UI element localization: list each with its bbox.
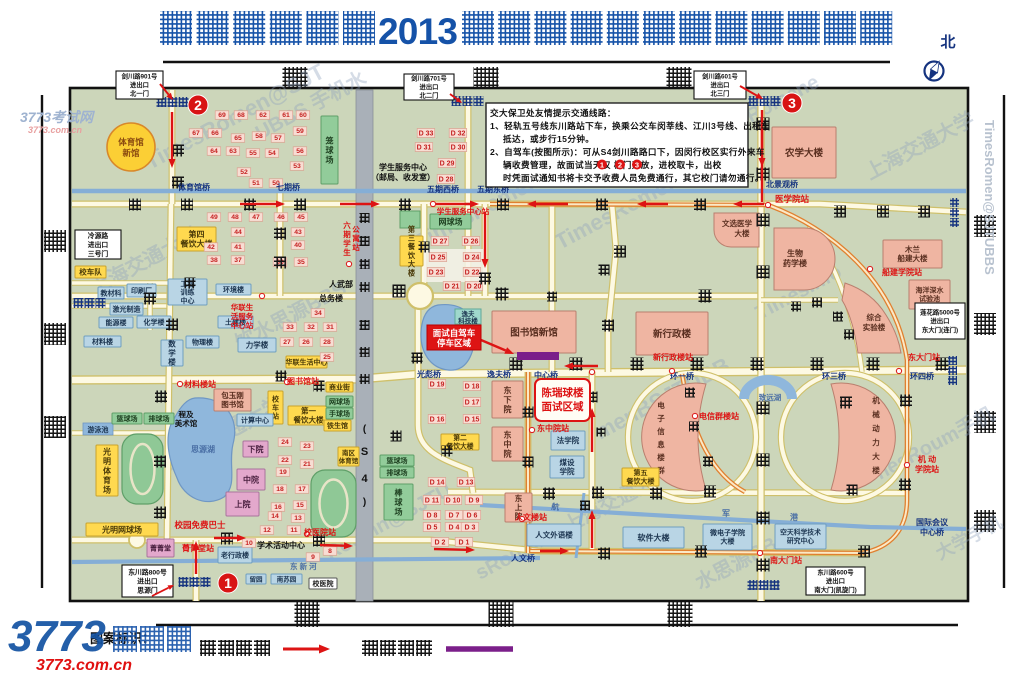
svg-text:D 25: D 25 xyxy=(431,254,446,261)
svg-text:3: 3 xyxy=(788,95,796,111)
svg-text:8: 8 xyxy=(328,548,332,555)
svg-text:22: 22 xyxy=(281,457,289,464)
svg-text:D 6: D 6 xyxy=(467,512,478,519)
svg-text:程及: 程及 xyxy=(179,410,194,419)
svg-text:3773考试网: 3773考试网 xyxy=(20,109,95,125)
svg-text:微电子学院: 微电子学院 xyxy=(709,528,745,537)
svg-text:16: 16 xyxy=(274,504,282,511)
svg-text:公寓站: 公寓站 xyxy=(352,225,360,252)
svg-text:农学大楼: 农学大楼 xyxy=(784,147,824,159)
svg-text:35: 35 xyxy=(297,259,305,266)
svg-text:铁生馆: 铁生馆 xyxy=(327,421,348,430)
svg-text:东川路600号: 东川路600号 xyxy=(817,568,854,577)
svg-text:27: 27 xyxy=(283,339,291,346)
svg-text:63: 63 xyxy=(229,148,237,155)
svg-text:新行政楼站: 新行政楼站 xyxy=(653,352,693,362)
svg-text:商业街: 商业街 xyxy=(329,382,350,391)
svg-text:中心站: 中心站 xyxy=(231,320,254,330)
svg-text:D 29: D 29 xyxy=(440,160,455,167)
svg-text:计算中心: 计算中心 xyxy=(241,415,269,424)
svg-text:思源湖: 思源湖 xyxy=(191,444,215,454)
svg-text:力学楼: 力学楼 xyxy=(246,340,269,350)
svg-text:67: 67 xyxy=(192,130,200,137)
svg-text:D 24: D 24 xyxy=(465,254,480,261)
svg-text:教材科: 教材科 xyxy=(100,288,122,297)
svg-text:58: 58 xyxy=(255,133,263,140)
svg-text:海洋深水: 海洋深水 xyxy=(916,286,945,295)
svg-text:（邮局、收发室）: （邮局、收发室） xyxy=(371,172,435,182)
svg-text:网球场: 网球场 xyxy=(439,216,463,226)
svg-text:26: 26 xyxy=(302,339,310,346)
svg-text:北: 北 xyxy=(940,34,955,51)
svg-text:航: 航 xyxy=(551,501,560,512)
svg-text:餐饮大楼: 餐饮大楼 xyxy=(293,415,324,425)
svg-text:51: 51 xyxy=(252,180,260,187)
svg-text:4: 4 xyxy=(361,473,368,485)
svg-text:生物: 生物 xyxy=(787,248,803,258)
svg-text:材料楼站: 材料楼站 xyxy=(184,379,216,389)
svg-text:21: 21 xyxy=(303,461,311,468)
svg-text:图书馆新馆: 图书馆新馆 xyxy=(510,326,558,338)
svg-text:科技楼: 科技楼 xyxy=(458,316,478,325)
svg-text:木兰: 木兰 xyxy=(904,244,920,254)
svg-text:中院: 中院 xyxy=(243,474,259,484)
svg-text:餐饮大楼: 餐饮大楼 xyxy=(626,477,655,486)
svg-text:篮球场: 篮球场 xyxy=(386,456,408,465)
svg-text:北一门: 北一门 xyxy=(130,89,149,98)
svg-text:进出口: 进出口 xyxy=(88,240,109,249)
svg-text:45: 45 xyxy=(297,214,305,221)
svg-text:进出口: 进出口 xyxy=(930,316,949,325)
svg-text:13: 13 xyxy=(294,515,302,522)
svg-text:中心: 中心 xyxy=(181,296,195,305)
svg-text:物理楼: 物理楼 xyxy=(192,337,213,346)
svg-text:65: 65 xyxy=(234,135,242,142)
svg-text:D 26: D 26 xyxy=(464,238,479,245)
svg-text:南大门站: 南大门站 xyxy=(770,555,802,565)
svg-text:D 31: D 31 xyxy=(417,144,432,151)
svg-text:D 2: D 2 xyxy=(435,539,446,546)
svg-text:56: 56 xyxy=(296,148,304,155)
svg-text:网球场: 网球场 xyxy=(329,397,350,406)
svg-text:66: 66 xyxy=(211,130,219,137)
svg-text:东下院: 东下院 xyxy=(504,385,512,414)
svg-text:进出口: 进出口 xyxy=(130,80,149,89)
svg-text:大楼: 大楼 xyxy=(721,537,735,546)
svg-text:上院: 上院 xyxy=(235,499,251,509)
svg-text:D 22: D 22 xyxy=(465,269,480,276)
svg-text:试验池: 试验池 xyxy=(919,294,940,303)
svg-text:57: 57 xyxy=(274,135,282,142)
svg-text:校医院站: 校医院站 xyxy=(304,527,336,537)
svg-text:电信群楼站: 电信群楼站 xyxy=(699,411,739,421)
svg-text:大楼: 大楼 xyxy=(735,228,750,238)
svg-text:44: 44 xyxy=(234,229,242,236)
svg-text:致远湖: 致远湖 xyxy=(759,392,782,402)
svg-text:59: 59 xyxy=(296,128,304,135)
svg-text:剑川路901号: 剑川路901号 xyxy=(121,72,158,81)
svg-text:进出口: 进出口 xyxy=(420,82,439,91)
svg-text:环四桥: 环四桥 xyxy=(910,371,935,381)
svg-text:剑川路601号: 剑川路601号 xyxy=(701,72,738,81)
svg-text:D 15: D 15 xyxy=(465,416,480,423)
svg-text:活服务: 活服务 xyxy=(231,311,254,321)
svg-text:数学楼: 数学楼 xyxy=(168,339,176,367)
svg-text:激光制造: 激光制造 xyxy=(113,304,142,313)
svg-text:TimesRomen@SJTUBBS: TimesRomen@SJTUBBS xyxy=(982,120,997,275)
svg-text:1: 1 xyxy=(224,575,232,591)
svg-text:综合: 综合 xyxy=(867,312,882,322)
svg-text:东中院: 东中院 xyxy=(504,429,512,458)
svg-text:环三桥: 环三桥 xyxy=(822,371,847,381)
svg-text:40: 40 xyxy=(294,242,302,249)
svg-text:光彪桥: 光彪桥 xyxy=(416,369,442,379)
svg-text:光明网球场: 光明网球场 xyxy=(101,524,142,534)
svg-text:体育馆: 体育馆 xyxy=(118,137,144,147)
svg-text:25: 25 xyxy=(323,354,331,361)
svg-text:停车区域: 停车区域 xyxy=(437,338,472,348)
svg-text:14: 14 xyxy=(271,513,279,520)
svg-text:面试自驾车: 面试自驾车 xyxy=(433,328,476,338)
svg-text:下院: 下院 xyxy=(248,444,264,454)
svg-text:D 1: D 1 xyxy=(459,539,470,546)
svg-text:人文楼站: 人文楼站 xyxy=(515,512,547,522)
svg-text:42: 42 xyxy=(207,244,215,251)
svg-text:D 32: D 32 xyxy=(451,130,466,137)
svg-text:南大门(凯旋门): 南大门(凯旋门) xyxy=(814,585,857,594)
svg-text:船建学院站: 船建学院站 xyxy=(882,267,922,277)
svg-text:D 9: D 9 xyxy=(469,497,480,504)
svg-text:人武部: 人武部 xyxy=(329,279,353,289)
svg-text:校园免费巴士: 校园免费巴士 xyxy=(174,520,226,530)
svg-text:9: 9 xyxy=(311,554,315,561)
svg-text:D 5: D 5 xyxy=(427,524,438,531)
svg-text:D 33: D 33 xyxy=(419,130,434,137)
svg-text:港: 港 xyxy=(790,512,799,522)
svg-text:抵达，或步行15分钟。: 抵达，或步行15分钟。 xyxy=(503,133,594,144)
svg-text:学生服务中心: 学生服务中心 xyxy=(379,162,427,172)
svg-text:D 8: D 8 xyxy=(427,512,438,519)
svg-text:南区: 南区 xyxy=(342,448,356,457)
svg-text:进出口: 进出口 xyxy=(826,576,845,585)
svg-text:面试区域: 面试区域 xyxy=(542,400,584,413)
svg-text:15: 15 xyxy=(296,502,304,509)
svg-text:2013: 2013 xyxy=(378,11,458,52)
svg-text:人文桥: 人文桥 xyxy=(511,553,536,563)
svg-text:逸夫: 逸夫 xyxy=(462,309,476,318)
svg-text:排球场: 排球场 xyxy=(387,468,408,477)
svg-text:第二: 第二 xyxy=(453,433,467,442)
svg-text:53: 53 xyxy=(293,163,301,170)
svg-text:东川路800号: 东川路800号 xyxy=(128,567,167,576)
svg-text:思源门: 思源门 xyxy=(137,585,158,594)
svg-text:1: 1 xyxy=(600,161,604,170)
svg-text:逸夫桥: 逸夫桥 xyxy=(487,369,512,379)
svg-text:机 动: 机 动 xyxy=(918,454,936,464)
svg-text:六期学生: 六期学生 xyxy=(343,220,351,257)
svg-text:医学院站: 医学院站 xyxy=(775,194,810,204)
svg-text:光明体育场: 光明体育场 xyxy=(102,446,112,494)
svg-text:69: 69 xyxy=(218,112,226,119)
svg-text:军: 军 xyxy=(722,509,730,518)
svg-text:D 16: D 16 xyxy=(430,416,445,423)
svg-text:手球场: 手球场 xyxy=(329,409,350,418)
svg-text:交大保卫处友情提示交通线路：: 交大保卫处友情提示交通线路： xyxy=(490,107,616,118)
svg-text:第三餐饮大楼: 第三餐饮大楼 xyxy=(407,225,416,277)
svg-text:北三门: 北三门 xyxy=(711,89,730,98)
svg-text:2: 2 xyxy=(194,97,202,113)
svg-text:54: 54 xyxy=(268,150,276,157)
svg-text:游泳池: 游泳池 xyxy=(88,425,109,434)
svg-text:研究中心: 研究中心 xyxy=(787,536,814,545)
svg-text:64: 64 xyxy=(210,148,218,155)
svg-text:北景观桥: 北景观桥 xyxy=(766,179,799,189)
svg-text:55: 55 xyxy=(249,150,257,157)
svg-text:18: 18 xyxy=(276,486,284,493)
svg-text:2: 2 xyxy=(618,161,622,170)
svg-text:2、自驾车(按图所示)：可从S4剑川路路口下，因闵行校区实行: 2、自驾车(按图所示)：可从S4剑川路路口下，因闵行校区实行外来车 xyxy=(490,146,765,157)
svg-text:进出口: 进出口 xyxy=(711,80,730,89)
svg-text:进出口: 进出口 xyxy=(137,576,158,585)
svg-text:48: 48 xyxy=(231,214,239,221)
svg-text:19: 19 xyxy=(279,469,287,476)
svg-text:船建大楼: 船建大楼 xyxy=(898,253,928,263)
svg-text:): ) xyxy=(363,497,366,508)
svg-text:第五: 第五 xyxy=(634,468,648,477)
svg-text:3773: 3773 xyxy=(8,612,106,661)
svg-text:62: 62 xyxy=(259,112,267,119)
svg-text:S: S xyxy=(361,446,368,458)
svg-text:D 18: D 18 xyxy=(465,383,480,390)
svg-text:第一: 第一 xyxy=(301,406,316,416)
svg-text:老行政楼: 老行政楼 xyxy=(220,551,249,560)
svg-text:中心桥: 中心桥 xyxy=(920,527,945,537)
svg-text:留园: 留园 xyxy=(250,574,264,583)
svg-text:空天科学技术: 空天科学技术 xyxy=(780,528,821,537)
svg-text:D 14: D 14 xyxy=(430,479,445,486)
svg-text:33: 33 xyxy=(286,324,294,331)
svg-text:38: 38 xyxy=(210,257,218,264)
svg-text:笼球场: 笼球场 xyxy=(325,135,335,164)
svg-text:实验楼: 实验楼 xyxy=(863,322,886,332)
svg-text:28: 28 xyxy=(323,339,331,346)
svg-text:五期西桥: 五期西桥 xyxy=(427,184,460,194)
svg-text:D 3: D 3 xyxy=(465,524,476,531)
svg-text:学生服务中心站: 学生服务中心站 xyxy=(437,206,490,216)
svg-text:10: 10 xyxy=(245,540,253,547)
svg-text:D 23: D 23 xyxy=(429,269,444,276)
svg-text:三号门: 三号门 xyxy=(88,249,109,258)
svg-text:排球场: 排球场 xyxy=(149,414,170,423)
svg-text:莲花路5000号: 莲花路5000号 xyxy=(920,308,960,317)
svg-text:东 新 河: 东 新 河 xyxy=(290,561,317,571)
svg-text:3773.com.cn: 3773.com.cn xyxy=(28,125,83,135)
svg-text:文选医学: 文选医学 xyxy=(722,218,752,228)
svg-text:篮球场: 篮球场 xyxy=(116,414,138,423)
svg-text:棒球场: 棒球场 xyxy=(395,487,404,516)
svg-text:新馆: 新馆 xyxy=(122,148,140,158)
svg-text:北二门: 北二门 xyxy=(420,91,439,100)
svg-text:菁菁堂站: 菁菁堂站 xyxy=(182,543,214,553)
svg-text:17: 17 xyxy=(298,486,306,493)
svg-text:D 30: D 30 xyxy=(451,144,466,151)
svg-text:七期桥: 七期桥 xyxy=(276,182,301,192)
svg-text:68: 68 xyxy=(237,112,245,119)
svg-text:1、轻轨五号线东川路站下车，换乘公交车闵莘线、江川3号线、出: 1、轻轨五号线东川路站下车，换乘公交车闵莘线、江川3号线、出租车 xyxy=(490,120,770,131)
svg-text:陈瑞球楼: 陈瑞球楼 xyxy=(542,386,584,399)
svg-text:时凭面试通知书将卡交予收费人员免费通行，其它校门请勿通行。: 时凭面试通知书将卡交予收费人员免费通行，其它校门请勿通行。 xyxy=(503,172,764,183)
svg-text:法学院: 法学院 xyxy=(557,435,580,445)
svg-text:东大门(连门): 东大门(连门) xyxy=(922,325,958,334)
svg-text:包玉刚: 包玉刚 xyxy=(220,390,244,400)
svg-text:3: 3 xyxy=(635,161,639,170)
svg-text:D 27: D 27 xyxy=(433,238,448,245)
svg-text:新行政楼: 新行政楼 xyxy=(653,328,692,340)
svg-text:49: 49 xyxy=(210,214,218,221)
svg-text:图书馆: 图书馆 xyxy=(221,399,244,409)
svg-text:41: 41 xyxy=(234,244,242,251)
svg-text:图书馆站: 图书馆站 xyxy=(287,376,319,386)
svg-text:46: 46 xyxy=(277,214,285,221)
svg-text:美术馆: 美术馆 xyxy=(175,418,198,428)
svg-text:D 7: D 7 xyxy=(449,512,460,519)
svg-text:学院站: 学院站 xyxy=(915,464,939,474)
svg-text:43: 43 xyxy=(294,229,302,236)
svg-text:D 10: D 10 xyxy=(446,497,461,504)
svg-text:34: 34 xyxy=(314,310,322,317)
svg-text:47: 47 xyxy=(252,214,260,221)
svg-text:D 19: D 19 xyxy=(430,381,445,388)
svg-text:辆收费管理，故面试当天仅: 辆收费管理，故面试当天仅 校门开放，进校取卡，出校 xyxy=(503,159,722,170)
svg-text:D 17: D 17 xyxy=(465,399,480,406)
svg-text:化学楼: 化学楼 xyxy=(144,317,165,326)
svg-text:3773.com.cn: 3773.com.cn xyxy=(36,657,132,674)
svg-text:校车队: 校车队 xyxy=(79,267,102,277)
svg-text:训练: 训练 xyxy=(181,287,195,296)
svg-text:32: 32 xyxy=(307,324,315,331)
svg-text:体育馆桥: 体育馆桥 xyxy=(178,182,211,192)
svg-text:环境楼: 环境楼 xyxy=(223,285,244,294)
svg-text:D 21: D 21 xyxy=(445,283,460,290)
svg-text:11: 11 xyxy=(290,527,297,534)
svg-text:煤设: 煤设 xyxy=(560,457,575,467)
svg-text:D 11: D 11 xyxy=(425,497,440,504)
svg-text:东大门站: 东大门站 xyxy=(908,352,940,362)
svg-text:国际会议: 国际会议 xyxy=(916,517,949,527)
svg-text:软件大楼: 软件大楼 xyxy=(638,532,670,542)
svg-text:校医院: 校医院 xyxy=(313,579,334,588)
svg-text:61: 61 xyxy=(282,112,290,119)
svg-text:37: 37 xyxy=(234,257,242,264)
svg-text:冷源路: 冷源路 xyxy=(88,231,109,240)
svg-text:药学楼: 药学楼 xyxy=(783,258,807,268)
svg-text:总务楼: 总务楼 xyxy=(319,293,343,303)
svg-text:菁菁堂: 菁菁堂 xyxy=(150,544,171,553)
svg-text:第四: 第四 xyxy=(189,229,205,239)
svg-text:D 28: D 28 xyxy=(439,176,454,183)
svg-text:D 13: D 13 xyxy=(459,479,474,486)
svg-text:南苏园: 南苏园 xyxy=(277,574,297,583)
svg-text:D 4: D 4 xyxy=(449,524,460,531)
svg-text:23: 23 xyxy=(303,443,311,450)
svg-text:材料楼: 材料楼 xyxy=(91,337,113,346)
svg-text:24: 24 xyxy=(281,439,289,446)
svg-text:华联生: 华联生 xyxy=(231,302,254,312)
svg-text:学院: 学院 xyxy=(560,466,575,476)
svg-text:学术活动中心: 学术活动中心 xyxy=(257,540,305,550)
svg-text:12: 12 xyxy=(263,527,271,534)
svg-text:31: 31 xyxy=(326,324,334,331)
svg-text:能源楼: 能源楼 xyxy=(106,318,127,327)
svg-text:剑川路701号: 剑川路701号 xyxy=(410,74,447,83)
svg-text:60: 60 xyxy=(299,112,307,119)
svg-text:人文外语楼: 人文外语楼 xyxy=(535,530,573,540)
svg-text:东中院站: 东中院站 xyxy=(537,423,569,433)
svg-text:52: 52 xyxy=(240,169,248,176)
svg-text:体育馆: 体育馆 xyxy=(339,456,359,465)
